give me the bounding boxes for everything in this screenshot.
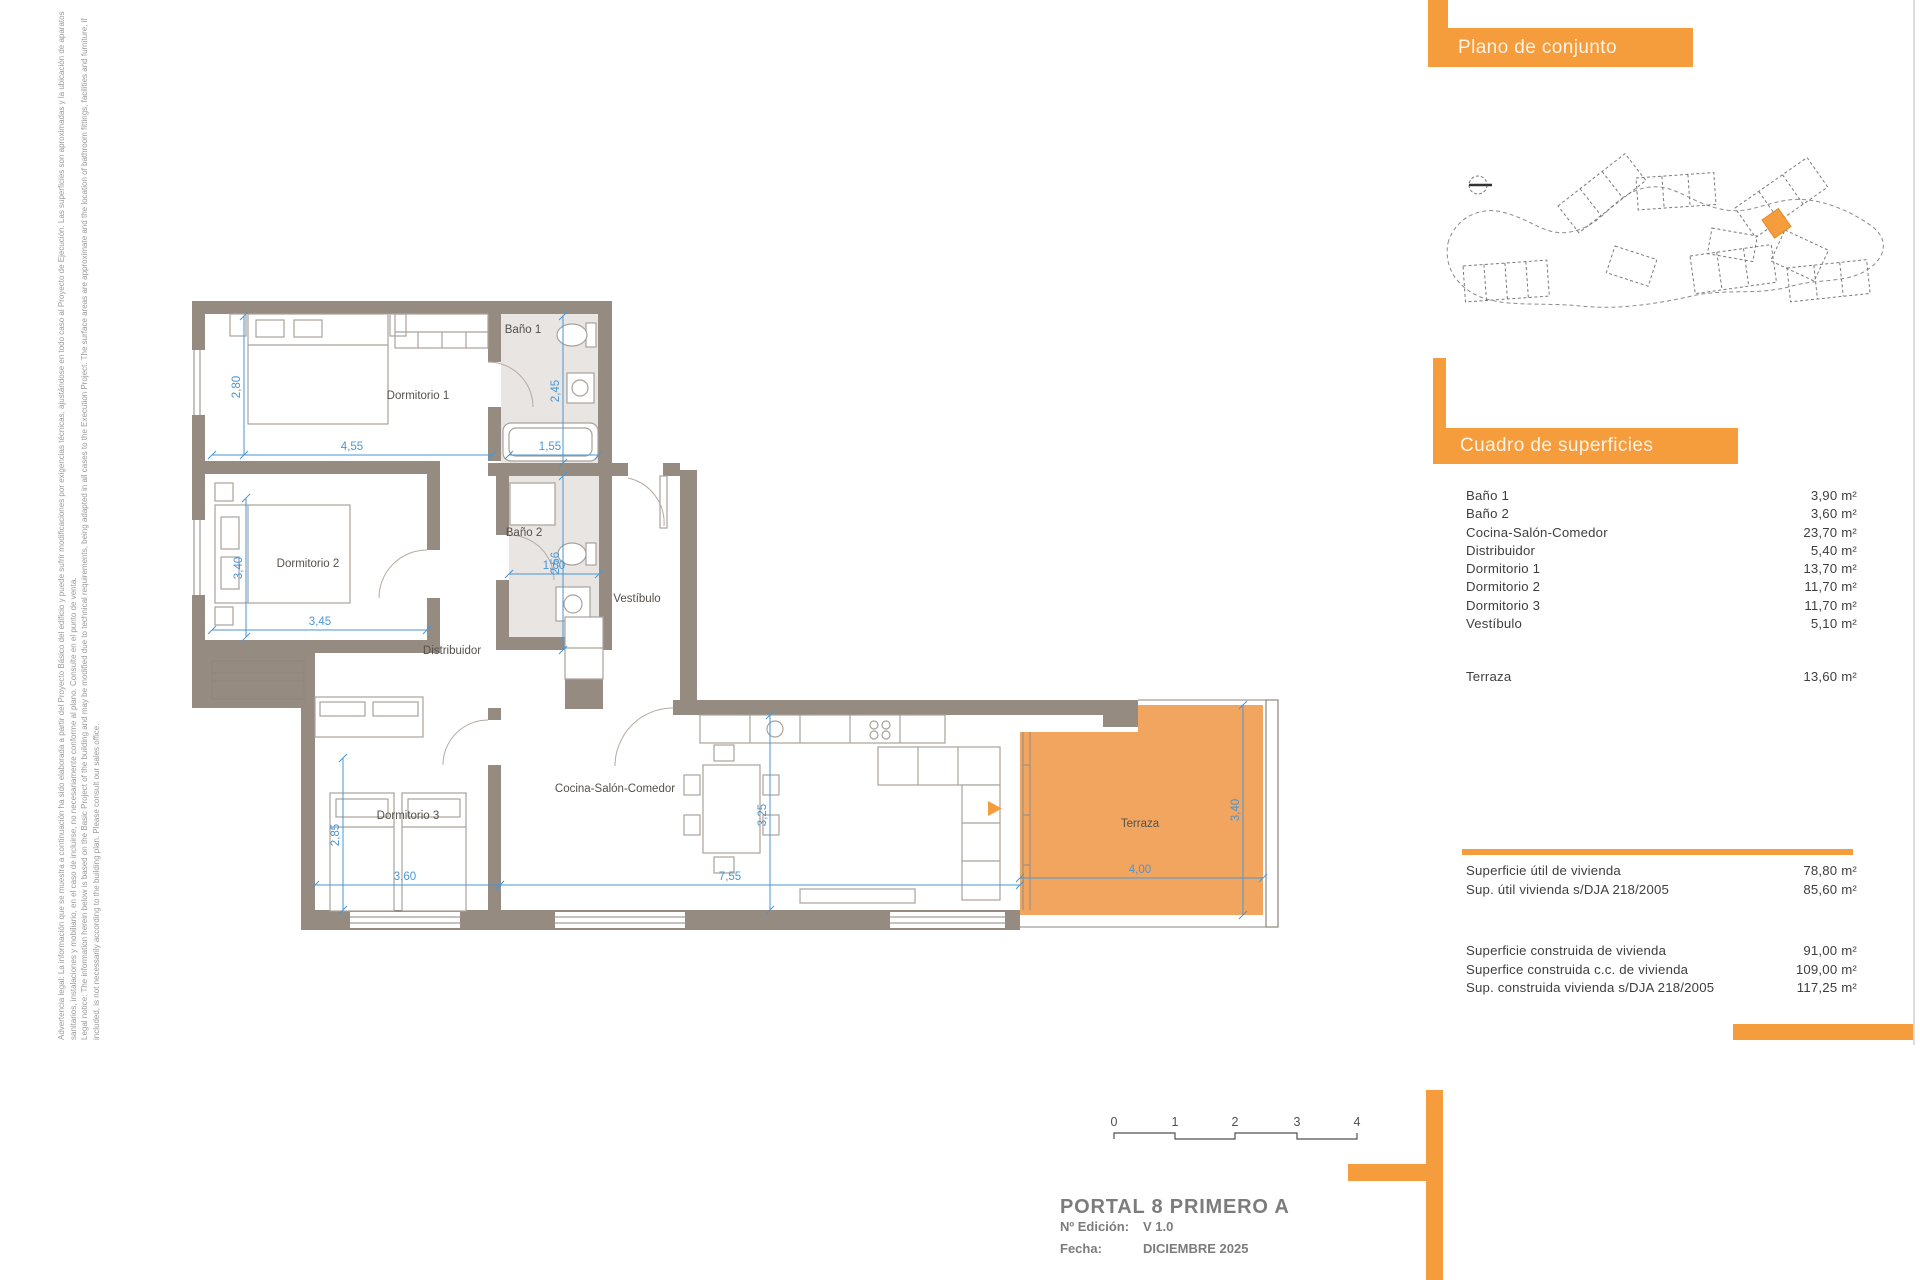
wardrobe-distribuidor — [315, 697, 423, 737]
dim-salon-w: 7,55 — [719, 871, 741, 883]
surface-room-value: 13,70 m² — [1803, 561, 1857, 579]
terraza-row-wrap: Terraza 13,60 m² — [1466, 669, 1857, 687]
summary-row: Superficie construida de vivienda 91,00 … — [1466, 943, 1857, 962]
edition-label: Nº Edición: — [1060, 1219, 1129, 1234]
closet-vestibulo — [565, 617, 603, 679]
surface-room-value: 3,90 m² — [1811, 488, 1857, 506]
scale-0: 0 — [1111, 1115, 1118, 1129]
surface-room-value: 3,60 m² — [1811, 506, 1857, 524]
sofa — [878, 747, 1000, 900]
legal-disclaimer: Advertencia legal: La información que se… — [56, 10, 102, 1040]
summary-label: Sup. construida vivienda s/DJA 218/2005 — [1466, 980, 1714, 999]
surface-room-label: Cocina-Salón-Comedor — [1466, 525, 1608, 543]
scale-4: 4 — [1354, 1115, 1361, 1129]
scale-1: 1 — [1172, 1115, 1179, 1129]
summary-label: Superficie útil de vivienda — [1466, 863, 1621, 882]
surface-row-terraza: Terraza 13,60 m² — [1466, 669, 1857, 687]
dim-dorm2-w: 3,45 — [309, 616, 331, 628]
site-buildings — [1463, 154, 1870, 302]
site-plan-map — [1440, 128, 1920, 323]
summary-value: 117,25 m² — [1797, 980, 1857, 999]
surface-room-label: Baño 2 — [1466, 506, 1509, 524]
surface-room-label: Baño 1 — [1466, 488, 1509, 506]
north-compass-icon — [1469, 176, 1492, 194]
sink-bano1 — [567, 373, 594, 403]
surface-room-value: 11,70 m² — [1804, 598, 1857, 616]
surface-row: Dormitorio 3 11,70 m² — [1466, 598, 1857, 616]
summary-label: Superficie construida de vivienda — [1466, 943, 1666, 962]
label-distribuidor: Distribuidor — [423, 645, 481, 657]
bed-dorm2 — [215, 483, 350, 625]
surface-row: Baño 2 3,60 m² — [1466, 506, 1857, 524]
surface-row: Distribuidor 5,40 m² — [1466, 543, 1857, 561]
dim-bano1-h: 2,45 — [550, 380, 562, 402]
legal-line: Legal notice: The information herein bel… — [79, 10, 91, 1040]
summary-label: Sup. útil vivienda s/DJA 218/2005 — [1466, 882, 1669, 901]
label-dormitorio1: Dormitorio 1 — [387, 390, 450, 402]
summary-value: 91,00 m² — [1803, 943, 1857, 962]
label-vestibulo: Vestíbulo — [613, 593, 660, 605]
cabinet-bano2 — [510, 483, 555, 525]
surface-room-value: 5,40 m² — [1811, 543, 1857, 561]
highlighted-unit — [1762, 209, 1791, 238]
surface-room-label: Vestíbulo — [1466, 616, 1522, 634]
surface-room-label: Dormitorio 1 — [1466, 561, 1540, 579]
sink-bano2 — [556, 587, 590, 621]
tv-bench — [800, 889, 915, 903]
terraza-area — [1020, 705, 1263, 915]
label-dormitorio2: Dormitorio 2 — [277, 558, 340, 570]
label-bano1: Baño 1 — [505, 324, 541, 336]
floor-plan: 2,80 4,55 2,45 1,55 3,40 3,45 2,56 1,60 … — [190, 295, 1305, 960]
scale-bar: 0 1 2 3 4 — [1090, 1108, 1380, 1158]
dim-bano1-w: 1,55 — [539, 441, 561, 453]
dim-dorm1-h: 2,80 — [231, 376, 243, 398]
summary-row: Superfice construida c.c. de vivienda 10… — [1466, 962, 1857, 981]
bed-dorm1 — [230, 314, 406, 424]
summary-value: 78,80 m² — [1803, 863, 1857, 882]
label-cocina: Cocina-Salón-Comedor — [555, 783, 675, 795]
surfaces-table: Baño 1 3,90 m² Baño 2 3,60 m² Cocina-Sal… — [1466, 488, 1857, 634]
corner-bar-right — [1733, 1024, 1915, 1040]
dim-dorm3-h: 2,85 — [330, 824, 342, 846]
dim-salon-h: 3,25 — [757, 804, 769, 826]
legal-line: sanitarios, instalaciones y mobiliario, … — [68, 10, 80, 1040]
dim-terraza-w: 4,00 — [1129, 864, 1151, 876]
surface-room-label: Dormitorio 3 — [1466, 598, 1540, 616]
summary-row: Sup. útil vivienda s/DJA 218/2005 85,60 … — [1466, 882, 1857, 901]
surface-row: Baño 1 3,90 m² — [1466, 488, 1857, 506]
dim-dorm1-w: 4,55 — [341, 441, 363, 453]
dim-dorm2-h: 3,40 — [233, 557, 245, 579]
summary-value: 109,00 m² — [1796, 962, 1857, 981]
closet-dorm1 — [395, 314, 488, 348]
date-label: Fecha: — [1060, 1241, 1102, 1256]
label-dormitorio3: Dormitorio 3 — [377, 810, 440, 822]
summary-value: 85,60 m² — [1803, 882, 1857, 901]
summary-label: Superfice construida c.c. de vivienda — [1466, 962, 1688, 981]
surfaces-header: Cuadro de superficies — [1433, 428, 1738, 464]
surface-room-label: Distribuidor — [1466, 543, 1535, 561]
corner-bracket-arm — [1348, 1164, 1426, 1181]
surface-row: Dormitorio 2 11,70 m² — [1466, 579, 1857, 597]
summary-row: Sup. construida vivienda s/DJA 218/2005 … — [1466, 980, 1857, 999]
surface-row: Dormitorio 1 13,70 m² — [1466, 561, 1857, 579]
dim-bano2-w: 1,60 — [543, 560, 565, 572]
summary-construida: Superficie construida de vivienda 91,00 … — [1466, 943, 1857, 999]
summary-util: Superficie útil de vivienda 78,80 m² Sup… — [1466, 863, 1857, 900]
kitchen-counter — [700, 715, 945, 743]
scale-2: 2 — [1232, 1115, 1239, 1129]
terraza-value: 13,60 m² — [1803, 669, 1857, 687]
surfaces-title: Cuadro de superficies — [1460, 435, 1653, 457]
plan-sheet: { "legal": { "l1": "Advertencia legal: L… — [0, 0, 1920, 1280]
site-boundary — [1447, 187, 1883, 307]
sheet-title: PORTAL 8 PRIMERO A — [1060, 1196, 1290, 1219]
surface-room-value: 23,70 m² — [1803, 525, 1857, 543]
terraza-label: Terraza — [1466, 669, 1511, 687]
legal-line: Advertencia legal: La información que se… — [56, 10, 68, 1040]
edition-value: V 1.0 — [1143, 1219, 1173, 1234]
surface-row: Vestíbulo 5,10 m² — [1466, 616, 1857, 634]
page-edge-line — [1913, 0, 1915, 1045]
surface-room-value: 11,70 m² — [1804, 579, 1857, 597]
dim-terraza-h: 3,40 — [1230, 799, 1242, 821]
label-bano2: Baño 2 — [506, 527, 542, 539]
surface-room-value: 5,10 m² — [1811, 616, 1857, 634]
summary-row: Superficie útil de vivienda 78,80 m² — [1466, 863, 1857, 882]
corner-bracket-vertical — [1426, 1090, 1443, 1280]
site-plan-header: Plano de conjunto — [1436, 28, 1693, 67]
date-value: DICIEMBRE 2025 — [1143, 1241, 1248, 1256]
surface-row: Cocina-Salón-Comedor 23,70 m² — [1466, 525, 1857, 543]
surface-room-label: Dormitorio 2 — [1466, 579, 1540, 597]
summary-rule — [1462, 849, 1853, 855]
dim-dorm3-w: 3,60 — [394, 871, 416, 883]
label-terraza: Terraza — [1121, 818, 1160, 830]
legal-line: included, is not necessarily according t… — [91, 10, 103, 1040]
site-plan-title: Plano de conjunto — [1458, 37, 1617, 59]
scale-3: 3 — [1294, 1115, 1301, 1129]
